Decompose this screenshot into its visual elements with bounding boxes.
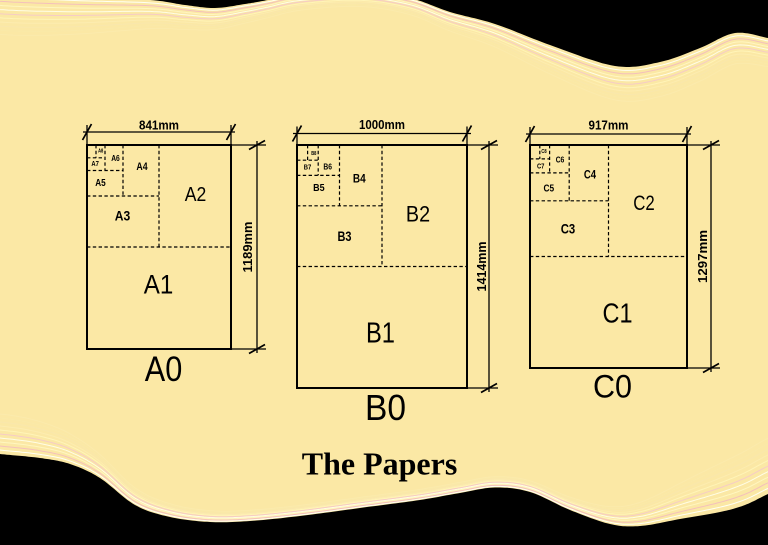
svg-text:1000mm: 1000mm bbox=[359, 117, 405, 132]
svg-text:C0: C0 bbox=[593, 368, 632, 404]
svg-text:B4: B4 bbox=[353, 171, 366, 185]
svg-text:1414mm: 1414mm bbox=[474, 242, 489, 292]
svg-text:C7: C7 bbox=[537, 164, 545, 171]
svg-text:A5: A5 bbox=[95, 178, 106, 189]
svg-text:A0: A0 bbox=[145, 350, 183, 389]
svg-text:C5: C5 bbox=[543, 183, 554, 195]
svg-text:C8: C8 bbox=[541, 149, 546, 155]
svg-text:A7: A7 bbox=[91, 161, 99, 168]
svg-text:A3: A3 bbox=[115, 208, 131, 224]
svg-text:B3: B3 bbox=[338, 228, 352, 244]
svg-text:The Papers: The Papers bbox=[302, 445, 458, 481]
svg-text:B7: B7 bbox=[304, 164, 312, 171]
svg-text:B2: B2 bbox=[406, 201, 430, 226]
svg-text:B5: B5 bbox=[313, 182, 325, 194]
svg-text:C1: C1 bbox=[603, 298, 633, 329]
svg-text:B0: B0 bbox=[365, 387, 406, 428]
svg-text:1189mm: 1189mm bbox=[240, 222, 255, 273]
svg-text:1297mm: 1297mm bbox=[695, 230, 710, 283]
svg-text:B6: B6 bbox=[323, 163, 332, 172]
svg-text:A1: A1 bbox=[144, 270, 174, 300]
svg-text:841mm: 841mm bbox=[139, 118, 179, 133]
svg-text:B1: B1 bbox=[366, 317, 395, 349]
svg-text:A8: A8 bbox=[98, 149, 103, 155]
svg-text:C2: C2 bbox=[633, 191, 655, 215]
svg-text:B8: B8 bbox=[311, 151, 316, 157]
svg-text:C6: C6 bbox=[556, 155, 565, 164]
svg-text:917mm: 917mm bbox=[589, 118, 629, 133]
svg-text:A6: A6 bbox=[111, 154, 120, 163]
svg-text:A4: A4 bbox=[136, 161, 148, 173]
svg-text:A2: A2 bbox=[185, 184, 207, 206]
svg-text:C3: C3 bbox=[561, 220, 576, 236]
svg-text:C4: C4 bbox=[584, 167, 596, 181]
